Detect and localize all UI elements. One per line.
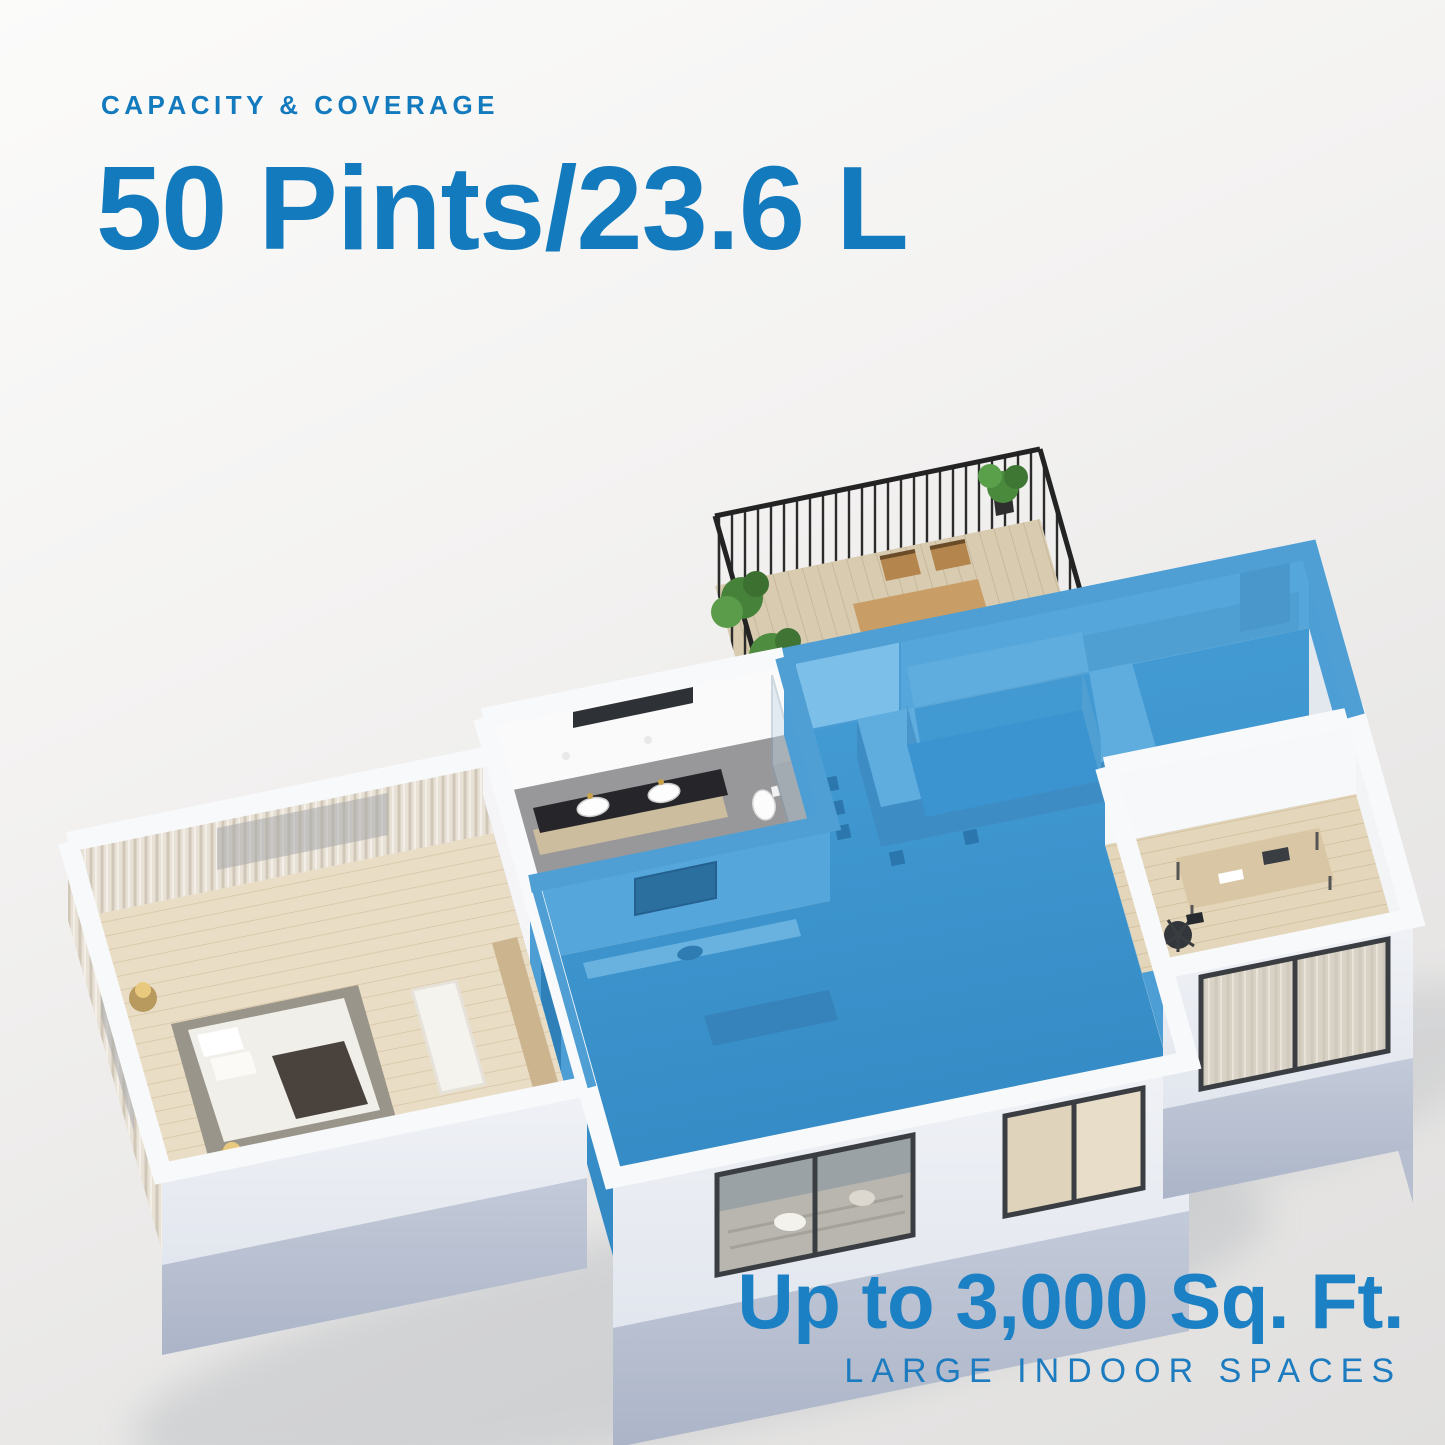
- coverage-subtitle: LARGE INDOOR SPACES: [737, 1354, 1402, 1388]
- coverage-block: Up to 3,000 Sq. Ft. LARGE INDOOR SPACES: [737, 1262, 1404, 1388]
- coverage-value: Up to 3,000 Sq. Ft.: [737, 1262, 1404, 1340]
- page-title: 50 Pints/23.6 L: [96, 149, 908, 268]
- bathroom-sconce: [562, 752, 570, 760]
- page-canvas: CAPACITY & COVERAGE 50 Pints/23.6 L Up t…: [0, 0, 1445, 1445]
- eyebrow-label: CAPACITY & COVERAGE: [101, 90, 499, 121]
- bathroom-sconce: [644, 736, 652, 744]
